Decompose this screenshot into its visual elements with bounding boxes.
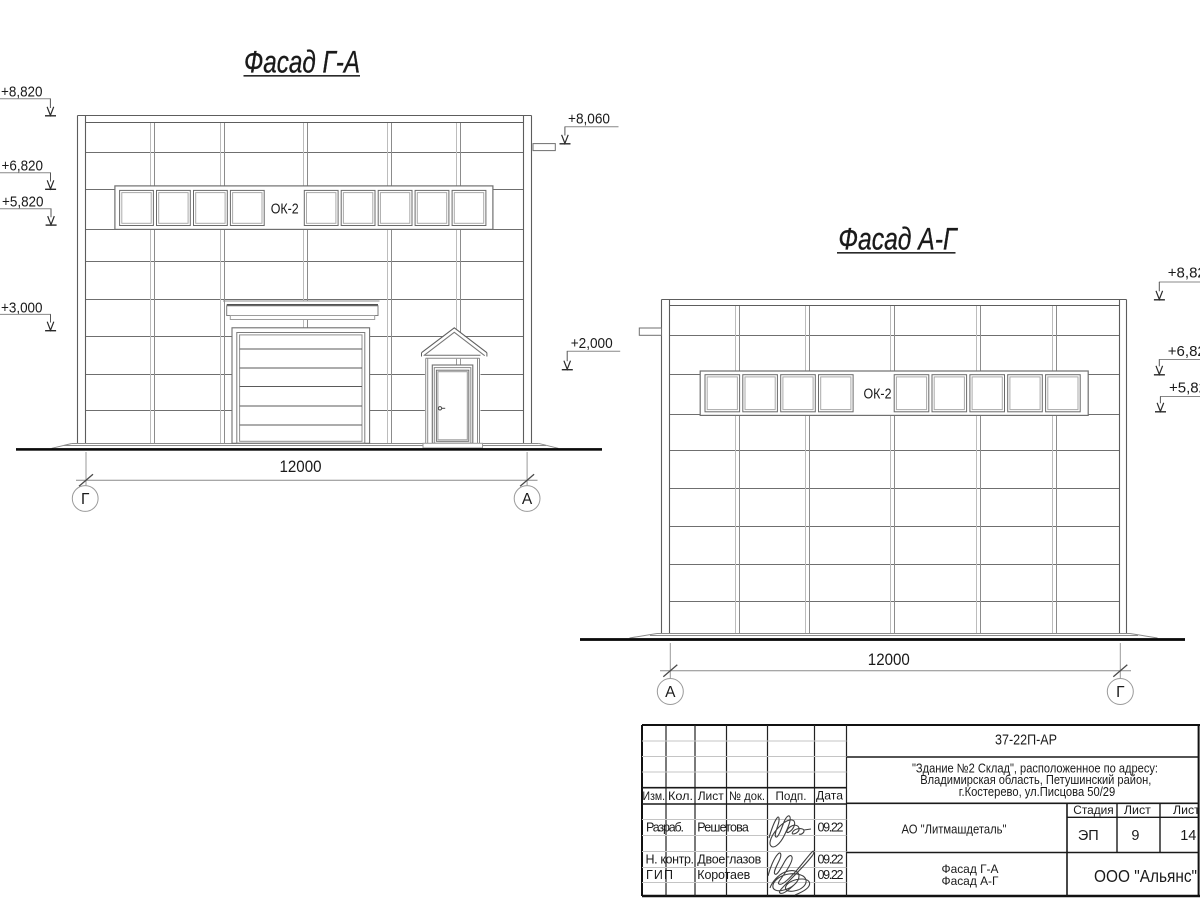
svg-text:+8,820: +8,820 — [1168, 265, 1200, 282]
svg-text:Стадия: Стадия — [1073, 803, 1114, 817]
svg-text:12000: 12000 — [280, 458, 322, 476]
svg-text:Г: Г — [1116, 684, 1125, 701]
svg-text:ООО "Альянс": ООО "Альянс" — [1094, 866, 1197, 886]
svg-text:Фасад А-Г: Фасад А-Г — [838, 221, 958, 257]
svg-text:09.22: 09.22 — [818, 820, 844, 834]
svg-text:14: 14 — [1180, 828, 1196, 844]
svg-text:+2,000: +2,000 — [571, 335, 613, 352]
svg-text:А: А — [665, 684, 676, 701]
svg-text:+5,820: +5,820 — [2, 194, 44, 211]
svg-text:ОК-2: ОК-2 — [271, 201, 299, 218]
svg-text:09.22: 09.22 — [818, 868, 844, 882]
svg-text:Подп.: Подп. — [776, 789, 807, 803]
svg-text:Н. контр.: Н. контр. — [646, 852, 695, 866]
svg-text:Лист: Лист — [1124, 803, 1151, 817]
svg-text:Фасад А-Г: Фасад А-Г — [942, 874, 999, 888]
svg-text:12000: 12000 — [868, 651, 910, 669]
svg-text:Кол.: Кол. — [668, 789, 693, 803]
svg-text:Дата: Дата — [816, 789, 843, 803]
svg-text:Листов: Листов — [1173, 803, 1200, 817]
svg-text:37-22П-АР: 37-22П-АР — [995, 733, 1057, 749]
svg-text:+6,820: +6,820 — [1168, 343, 1200, 360]
svg-text:Фасад Г-А: Фасад Г-А — [244, 44, 360, 80]
svg-text:+8,820: +8,820 — [1, 84, 43, 101]
svg-text:9: 9 — [1131, 828, 1139, 844]
svg-text:А: А — [522, 491, 533, 508]
svg-text:ЭП: ЭП — [1078, 828, 1099, 844]
svg-text:09.22: 09.22 — [818, 852, 844, 866]
svg-text:+6,820: +6,820 — [2, 158, 44, 175]
svg-text:Г: Г — [81, 491, 90, 508]
svg-text:Лист: Лист — [698, 789, 724, 803]
svg-text:Коротаев: Коротаев — [697, 868, 750, 882]
svg-text:Решетова: Решетова — [697, 820, 749, 834]
svg-text:+8,060: +8,060 — [568, 110, 610, 127]
svg-text:г.Костерево, ул.Писцова 50/29: г.Костерево, ул.Писцова 50/29 — [959, 785, 1116, 799]
svg-text:№ док.: № док. — [729, 789, 765, 803]
svg-text:Разраб.: Разраб. — [646, 820, 684, 834]
svg-text:ОК-2: ОК-2 — [864, 386, 892, 403]
svg-text:Двоеглазов: Двоеглазов — [697, 852, 761, 866]
svg-text:Изм.: Изм. — [643, 789, 666, 803]
svg-text:+5,820: +5,820 — [1169, 380, 1200, 397]
svg-text:ГИП: ГИП — [646, 868, 673, 882]
svg-text:АО "Литмашдеталь": АО "Литмашдеталь" — [902, 823, 1007, 837]
